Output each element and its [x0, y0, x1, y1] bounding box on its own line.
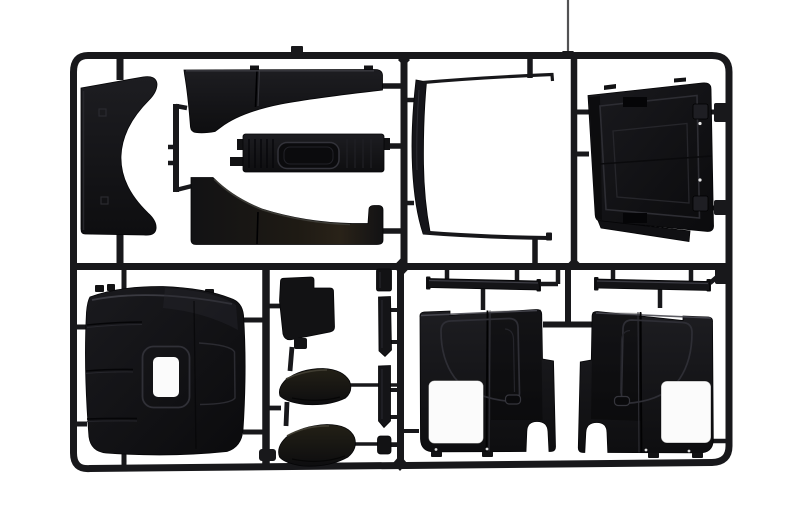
pillar: [412, 80, 430, 234]
frame-tab-right-lower: [715, 268, 728, 284]
tab: [230, 157, 244, 166]
part-step-bracket: [280, 277, 335, 349]
part-lower-sweep-panel: [191, 178, 383, 245]
gate-top-bump: [291, 46, 303, 55]
window-cutout: [661, 381, 711, 443]
foot: [692, 453, 703, 459]
part-side-panel-right: [578, 311, 713, 458]
lid-bump: [95, 285, 104, 292]
recess-slot: [278, 143, 339, 169]
screw-hole: [698, 178, 701, 181]
slot: [623, 213, 647, 223]
foot-hole: [435, 448, 438, 451]
part-trim-strip-upper: [379, 297, 392, 357]
foot: [648, 453, 659, 459]
window-cutout: [429, 381, 484, 444]
stubs-trim: [390, 310, 419, 445]
part-side-panel-left: [420, 309, 556, 457]
frame-tab-right-mid: [714, 200, 727, 215]
handle-recess: [615, 397, 630, 406]
gusset-center-cross: [393, 257, 411, 276]
part-trim-nub: [378, 436, 392, 454]
hinge-bump: [693, 104, 708, 119]
runner-foot-tab: [259, 449, 276, 461]
part-cab-back-box: [85, 284, 245, 455]
part-trim-segment-top: [377, 269, 392, 291]
part-wind-deflector-panel: [81, 77, 157, 235]
part-grille-panel: [230, 134, 390, 172]
rail-foot: [546, 233, 552, 241]
door-seam: [641, 312, 642, 453]
top-rail: [423, 75, 553, 83]
foot: [431, 452, 442, 458]
tab: [604, 84, 616, 90]
foot-hole: [688, 450, 691, 453]
part-windshield-frame: [412, 75, 553, 241]
foot-hole: [486, 448, 489, 451]
lid-bump: [107, 284, 115, 291]
slot: [623, 97, 647, 107]
sprue-photo: [0, 0, 800, 530]
hinge-bump: [693, 196, 708, 211]
foot: [482, 452, 493, 458]
screw-hole: [698, 122, 701, 125]
window-cutout: [153, 357, 179, 397]
part-scoop-lower: [279, 425, 356, 467]
seam: [257, 212, 258, 244]
bracket-tab: [294, 338, 307, 349]
handle-recess: [506, 395, 521, 404]
door-seam: [487, 311, 488, 452]
tab: [674, 78, 686, 83]
part-upper-sweep-panel: [184, 66, 383, 133]
part-rear-cab-panel: [588, 78, 714, 242]
bottom-rail: [423, 233, 549, 239]
foot-hole: [645, 449, 648, 452]
part-sill-strip-right: [594, 277, 711, 292]
frame-tab-right-upper: [714, 103, 728, 122]
part-scoop-upper: [279, 369, 350, 405]
sprue-svg: [0, 0, 800, 530]
runner-center-tee: [543, 270, 592, 325]
gate-ball: [121, 458, 126, 463]
part-trim-strip-lower: [379, 366, 391, 428]
